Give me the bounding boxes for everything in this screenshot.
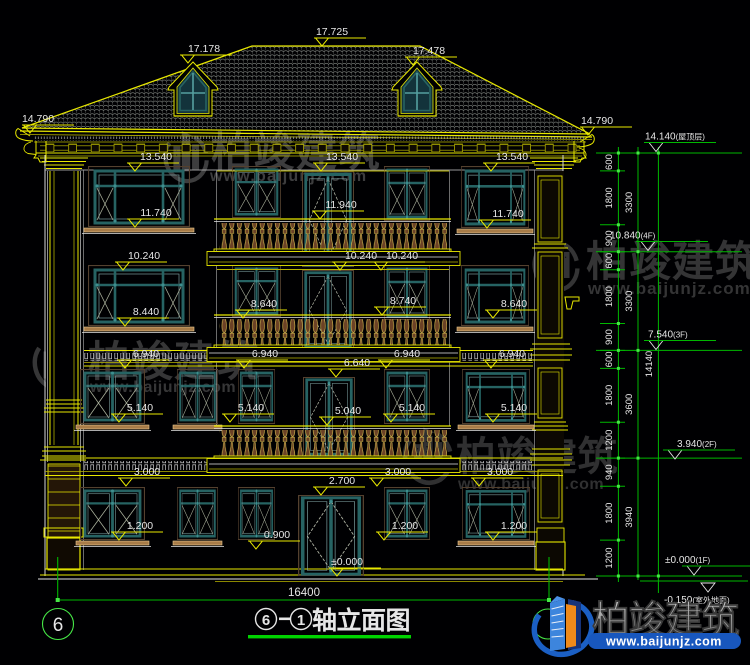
svg-text:3600: 3600 — [624, 394, 635, 415]
svg-text:14.790: 14.790 — [22, 113, 54, 125]
svg-text:900: 900 — [604, 329, 615, 345]
svg-text:8.640: 8.640 — [251, 298, 277, 310]
svg-text:13.540: 13.540 — [496, 151, 528, 163]
svg-text:±0.000: ±0.000 — [331, 556, 363, 568]
svg-text:6.940: 6.940 — [499, 348, 525, 360]
svg-text:8.740: 8.740 — [390, 295, 416, 307]
svg-text:3940: 3940 — [624, 507, 635, 528]
svg-text:1.200: 1.200 — [501, 520, 527, 532]
svg-text:13.540: 13.540 — [140, 151, 172, 163]
svg-text:6: 6 — [53, 615, 64, 636]
svg-text:1800: 1800 — [604, 503, 615, 524]
svg-text:1200: 1200 — [604, 430, 615, 451]
svg-text:11.740: 11.740 — [140, 207, 171, 219]
svg-text:600: 600 — [604, 351, 615, 367]
svg-text:3300: 3300 — [624, 192, 635, 213]
svg-text:1: 1 — [297, 612, 305, 629]
svg-text:1200: 1200 — [604, 547, 615, 568]
svg-text:17.478: 17.478 — [413, 45, 445, 57]
svg-text:1.200: 1.200 — [392, 520, 418, 532]
svg-text:5.140: 5.140 — [501, 402, 527, 414]
svg-text:11.740: 11.740 — [492, 208, 523, 220]
svg-text:8.440: 8.440 — [133, 306, 159, 318]
svg-text:6.940: 6.940 — [252, 348, 278, 360]
svg-text:1800: 1800 — [604, 385, 615, 406]
svg-text:14140: 14140 — [644, 351, 655, 377]
svg-text:14.140(屋顶层): 14.140(屋顶层) — [645, 132, 705, 143]
svg-text:1800: 1800 — [604, 286, 615, 307]
svg-text:3.000: 3.000 — [134, 466, 160, 478]
svg-text:1.200: 1.200 — [127, 520, 153, 532]
svg-text:7.540(3F): 7.540(3F) — [648, 330, 688, 341]
svg-text:600: 600 — [604, 154, 615, 170]
svg-text:10.840(4F): 10.840(4F) — [610, 231, 656, 242]
svg-text:0.900: 0.900 — [264, 529, 290, 541]
svg-text:13.540: 13.540 — [326, 151, 358, 163]
svg-text:3.000: 3.000 — [487, 466, 513, 478]
svg-text:5.140: 5.140 — [399, 402, 425, 414]
svg-text:1800: 1800 — [604, 187, 615, 208]
svg-text:11.940: 11.940 — [325, 199, 356, 211]
svg-text:6: 6 — [262, 612, 270, 629]
svg-text:16400: 16400 — [288, 587, 320, 599]
svg-text:5.040: 5.040 — [335, 405, 361, 417]
svg-text:600: 600 — [604, 253, 615, 269]
svg-text:www.baijunjz.com: www.baijunjz.com — [605, 635, 722, 649]
svg-text:3300: 3300 — [624, 291, 635, 312]
svg-text:10.240: 10.240 — [128, 250, 160, 262]
svg-text:6.940: 6.940 — [394, 348, 420, 360]
svg-text:14.790: 14.790 — [581, 115, 613, 127]
svg-text:2.700: 2.700 — [329, 475, 355, 487]
svg-text:6.940: 6.940 — [133, 348, 159, 360]
svg-text:10.240: 10.240 — [386, 250, 418, 262]
svg-text:17.178: 17.178 — [188, 43, 220, 55]
svg-text:±0.000(1F): ±0.000(1F) — [665, 555, 711, 566]
svg-text:轴立面图: 轴立面图 — [312, 606, 410, 635]
svg-text:6.640: 6.640 — [344, 357, 370, 369]
svg-text:940: 940 — [604, 464, 615, 480]
svg-text:5.140: 5.140 — [238, 402, 264, 414]
svg-text:17.725: 17.725 — [316, 26, 348, 38]
svg-text:3.000: 3.000 — [385, 466, 411, 478]
svg-text:8.640: 8.640 — [501, 298, 527, 310]
svg-text:3.940(2F): 3.940(2F) — [677, 439, 717, 450]
svg-text:10.240: 10.240 — [345, 250, 377, 262]
svg-text:5.140: 5.140 — [127, 402, 153, 414]
